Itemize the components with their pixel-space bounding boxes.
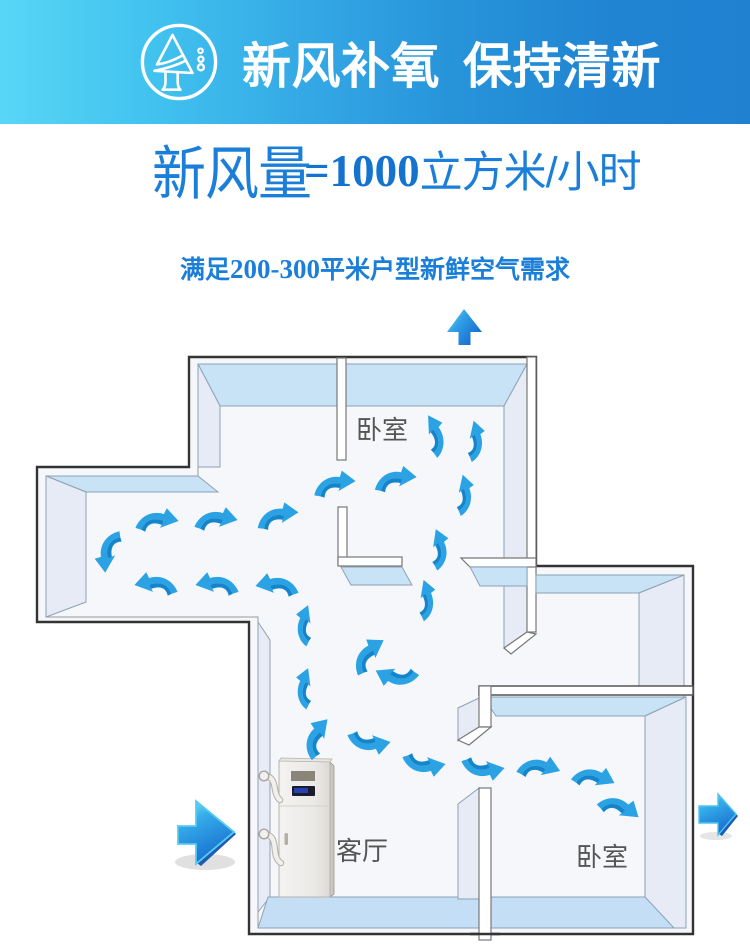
- svg-text:卧室: 卧室: [576, 842, 628, 872]
- svg-text:卧室: 卧室: [356, 415, 408, 445]
- svg-text:客厅: 客厅: [336, 836, 388, 866]
